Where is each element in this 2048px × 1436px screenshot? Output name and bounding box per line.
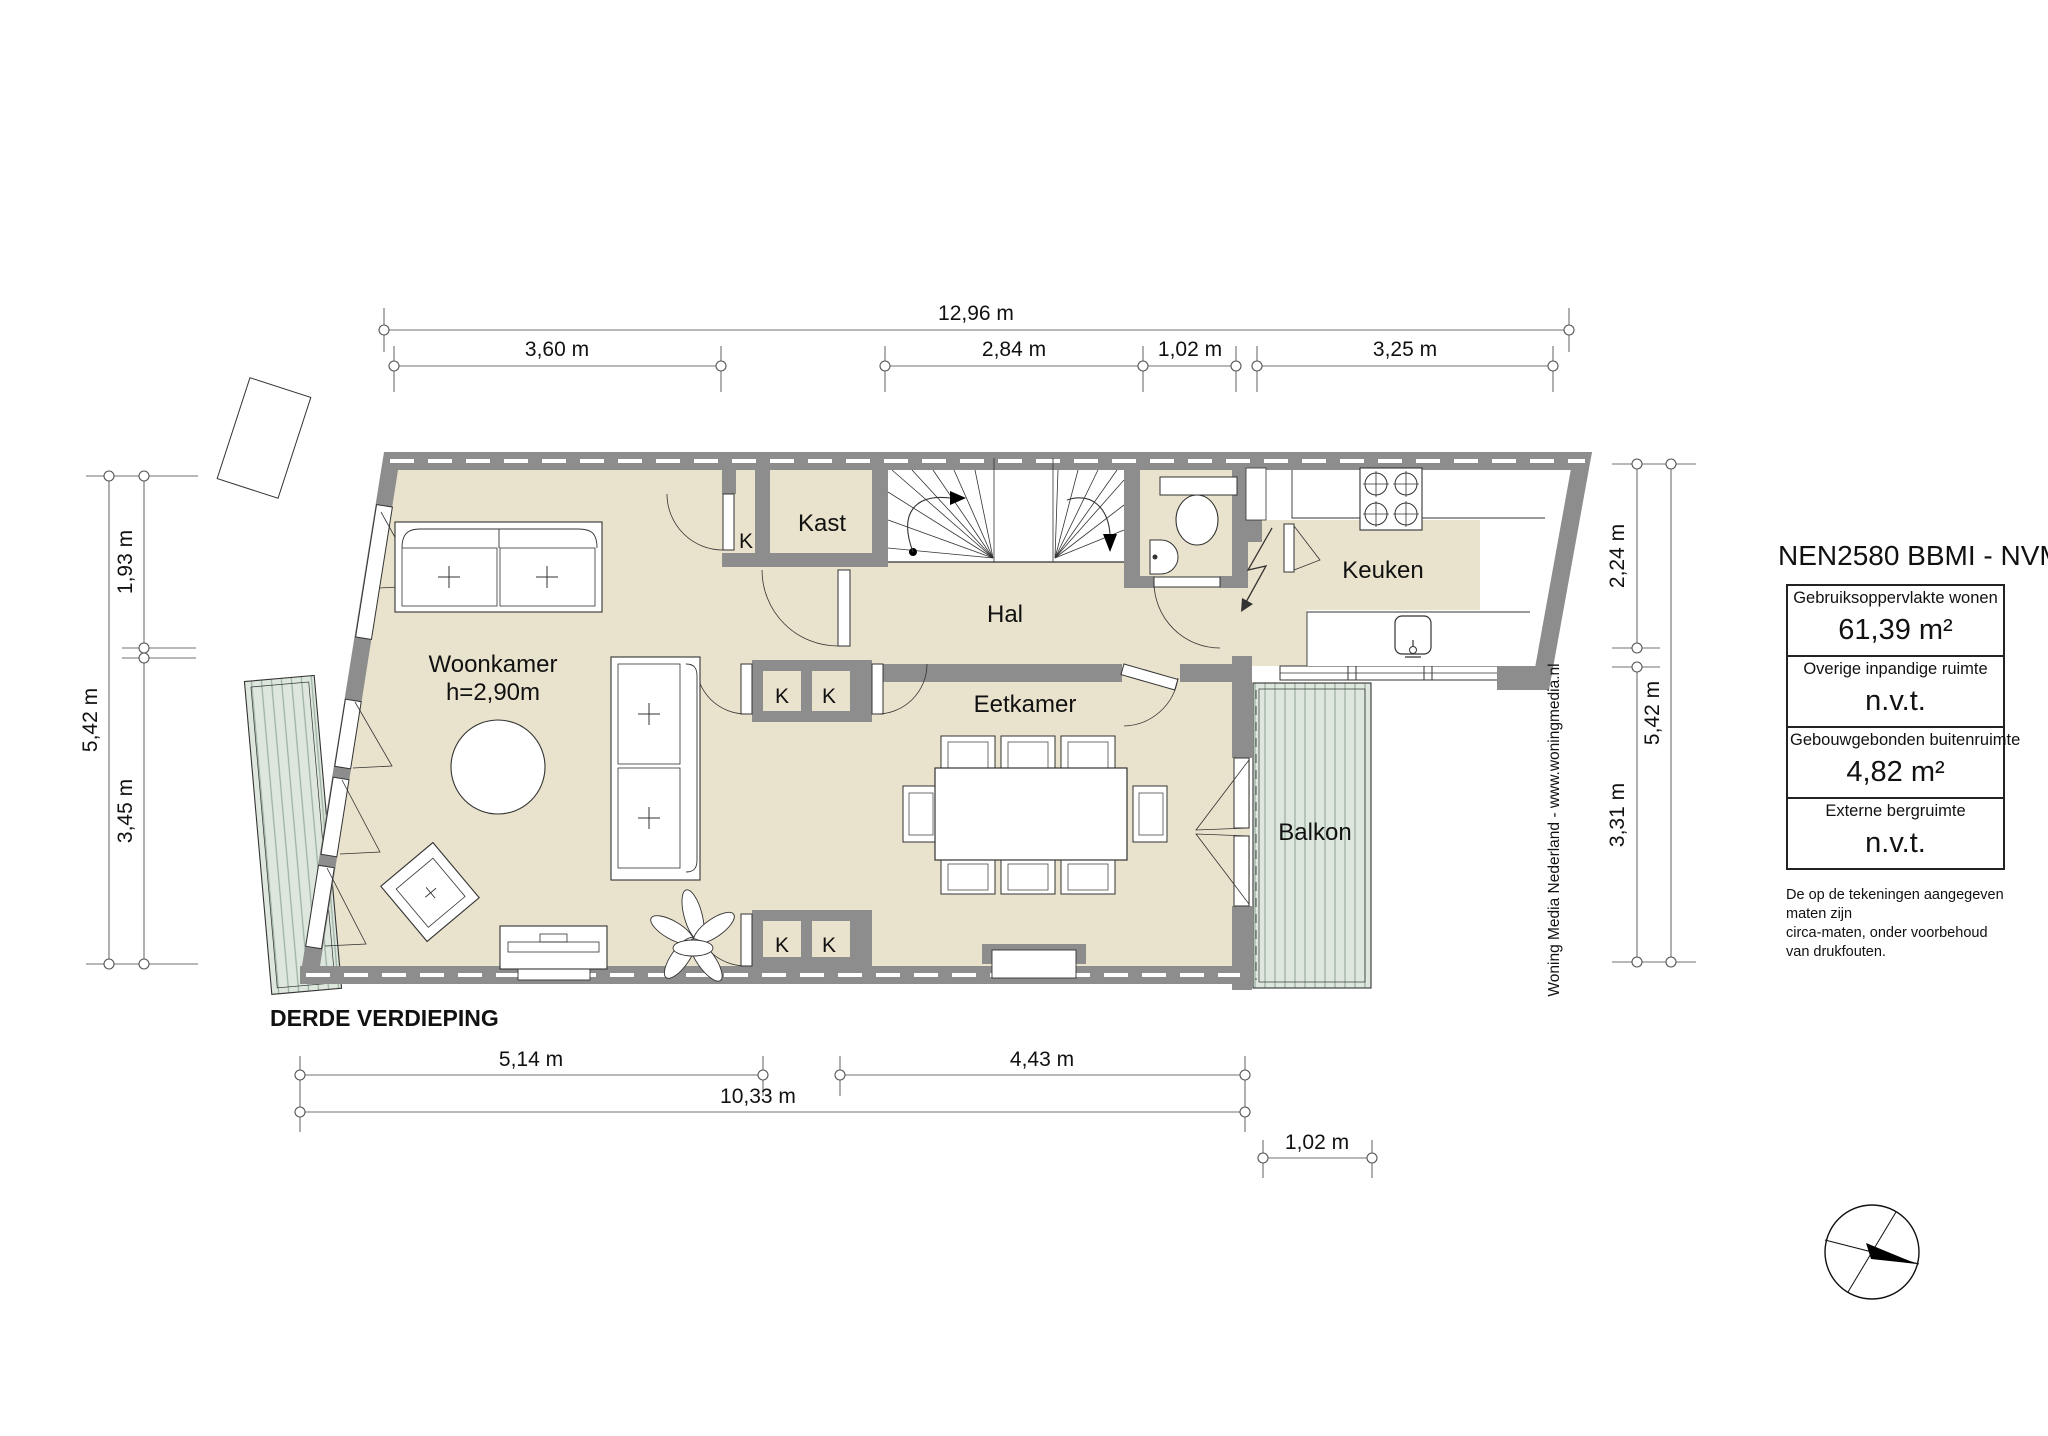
label-closet-k2: K [775,685,789,708]
wall-closet-stub [722,470,736,494]
label-balkon: Balkon [1278,819,1351,846]
legend-title: NEN2580 BBMI - NVM [1778,540,2008,572]
tv-cabinet [500,926,607,969]
wall-toilet-right [1232,452,1248,588]
label-closet-k3: K [822,685,836,708]
legend-row-externe-bergruimte: Externe bergruimte n.v.t. [1788,799,2003,868]
wall-toilet-bottom-left [1124,576,1154,588]
legend-disclaimer-line2: circa-maten, onder voorbehoud van drukfo… [1786,924,2008,962]
wall-kast-divider [755,470,770,562]
wall-eetkamer-right-top [1232,656,1252,758]
dim-right-total: 5,42 m [1641,681,1664,745]
label-closet-k5: K [822,934,836,957]
dining-table [935,768,1127,860]
legend-row-label: Gebruiksoppervlakte wonen [1790,589,2001,608]
dim-left-seg-1: 1,93 m [114,530,137,594]
label-kast: Kast [798,510,846,537]
legend-table: Gebruiksoppervlakte wonen 61,39 m² Overi… [1786,584,2005,870]
legend-row-value: n.v.t. [1790,827,2001,860]
wall-toilet-left [1124,470,1140,588]
credit-text: Woning Media Nederland - www.woningmedia… [1546,663,1563,996]
legend-panel: NEN2580 BBMI - NVM Gebruiksoppervlakte w… [1778,540,2008,962]
wall-kast-bottom [722,553,888,567]
dim-top-seg-4: 3,25 m [1373,338,1437,361]
floorplan-drawing: 12,96 m 3,60 m 2,84 m 1,02 m 3,25 m 5,42… [0,0,2048,1436]
legend-row-gebouwgebonden: Gebouwgebonden buitenruimte 4,82 m² [1788,728,2003,799]
toilet-bowl [1176,495,1218,545]
sofa-single [611,657,700,880]
legend-row-label: Overige inpandige ruimte [1790,660,2001,679]
shaft-niche [1246,468,1266,520]
sofa-two-seat [395,522,602,612]
dim-left-seg-2: 3,45 m [114,779,137,843]
label-closet-k4: K [775,934,789,957]
legend-row-label: Externe bergruimte [1790,802,2001,821]
wall-hal-south-b [1180,664,1232,682]
dim-top-seg-2: 2,84 m [982,338,1046,361]
label-hal: Hal [987,601,1023,628]
dim-balcony-width: 1,02 m [1285,1131,1349,1154]
compass-icon [1825,1205,1919,1299]
wall-shaft [1248,520,1262,542]
sink-tap-icon [1153,555,1158,560]
label-eetkamer: Eetkamer [974,691,1077,718]
kitchen-sink-icon [1395,616,1431,657]
legend-row-value: n.v.t. [1790,685,2001,718]
legend-disclaimer-line1: De op de tekeningen aangegeven maten zij… [1786,886,2008,924]
open-window-pane [217,378,311,499]
label-woonkamer-height: h=2,90m [446,679,540,706]
wall-kitchen-corner [1497,666,1540,690]
legend-row-value: 4,82 m² [1790,756,2001,789]
dim-bottom-total: 10,33 m [720,1085,796,1108]
dim-right-seg-1: 2,24 m [1606,524,1629,588]
label-closet-k1: K [739,530,753,553]
floor-title: DERDE VERDIEPING [270,1005,499,1031]
stairwell-floor [888,456,1124,562]
legend-row-overige-inpandige: Overige inpandige ruimte n.v.t. [1788,657,2003,728]
label-keuken: Keuken [1342,557,1423,584]
wall-hal-south-a [862,664,1122,682]
hob-icon [1360,468,1422,530]
dim-top-total: 12,96 m [938,302,1014,325]
kitchen-railing [1280,666,1500,680]
dim-left-total: 5,42 m [79,688,102,752]
dim-bottom-seg-2: 4,43 m [1010,1048,1074,1071]
dim-top-seg-1: 3,60 m [525,338,589,361]
floorplan-page: 12,96 m 3,60 m 2,84 m 1,02 m 3,25 m 5,42… [0,0,2048,1436]
dim-right-seg-2: 3,31 m [1606,783,1629,847]
legend-row-label: Gebouwgebonden buitenruimte [1790,731,2001,750]
legend-disclaimer: De op de tekeningen aangegeven maten zij… [1786,886,2008,962]
dim-top-seg-3: 1,02 m [1158,338,1222,361]
label-woonkamer: Woonkamer [429,651,558,678]
legend-row-gebruiksoppervlakte: Gebruiksoppervlakte wonen 61,39 m² [1788,586,2003,657]
toilet-cistern [1160,477,1237,495]
wall-toilet-bottom-right [1220,576,1232,588]
dim-bottom-seg-1: 5,14 m [499,1048,563,1071]
legend-row-value: 61,39 m² [1790,614,2001,647]
round-table [451,720,545,814]
wall-kast-right [872,470,888,562]
